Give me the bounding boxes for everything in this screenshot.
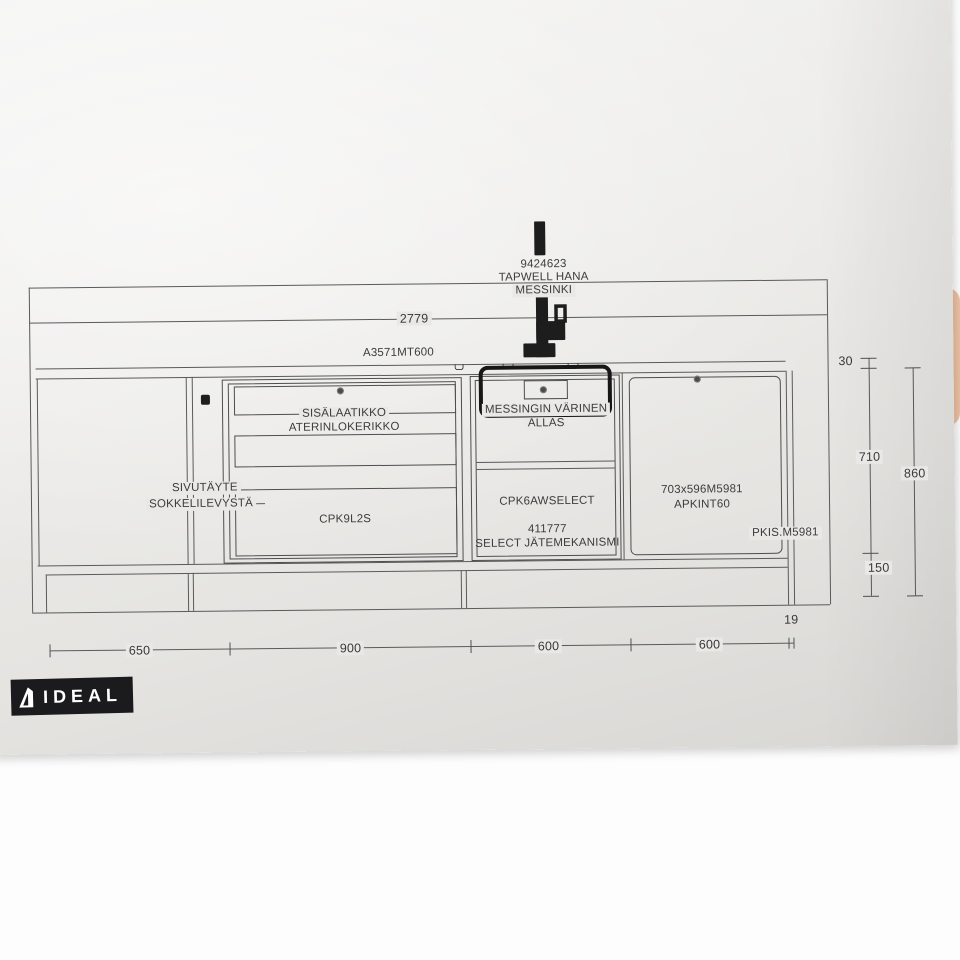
dim-tick [630, 638, 631, 651]
countertop-top-line [36, 361, 786, 370]
photo-of-kitchen-drawing: 2779 A3571MT600 9424623 TAPWELL HANA MES… [0, 0, 960, 960]
countertop-bottom-line [36, 371, 786, 380]
ideal-logo: IDEAL [11, 677, 134, 716]
floor-line [32, 604, 830, 613]
drawer-middle-box [234, 433, 456, 467]
inner-drawer-label-line2: ATERINLOKERIKKO [289, 421, 400, 435]
worktop-code-label: A3571MT600 [363, 346, 434, 360]
drawer-unit-outer-box [222, 377, 464, 564]
filler-label-line1: SIVUTÄYTE [169, 481, 241, 495]
screw-icon [337, 387, 344, 394]
width-dim-label-650: 650 [126, 643, 154, 658]
plinth-top-line [46, 567, 788, 576]
width-dim-label-600a: 600 [535, 639, 563, 654]
width-dim-label-900: 900 [337, 641, 365, 656]
bottom-dim-line [50, 643, 794, 652]
screw-icon [694, 376, 701, 383]
dim-tick [861, 368, 877, 369]
side-panel-right-line [792, 371, 795, 605]
side-panel-left-line [786, 371, 789, 605]
inner-drawer-label-line1: SISÄLAATIKKO [299, 407, 389, 421]
dim-tick [793, 638, 794, 649]
dim-tick [861, 358, 877, 359]
dim-tick [863, 596, 879, 597]
ideal-logo-icon [17, 685, 38, 710]
dim-tick [49, 644, 50, 657]
worktop-thickness-dim-label: 30 [838, 354, 852, 369]
faucet-material-label: MESSINKI [512, 284, 575, 298]
sink-color-label-line1: MESSINGIN VÄRINEN [482, 403, 610, 418]
faucet-code-label: 9424623 [520, 258, 566, 272]
total-height-dim-line [913, 367, 916, 595]
appliance-left-line [622, 372, 625, 559]
knob-icon [201, 395, 210, 405]
waste-mech-code-label: 411777 [528, 523, 567, 537]
sink-cabinet-rail-bottom [477, 467, 615, 469]
dim-tick [229, 643, 230, 656]
sink-color-label-line2: ALLAS [525, 417, 568, 431]
dim-tick [907, 595, 923, 596]
sink-cabinet-code-label: CPK6AWSELECT [499, 495, 594, 509]
width-dim-label-600b: 600 [696, 637, 724, 652]
total-width-dim-label: 2779 [397, 311, 432, 326]
filler-right-line [192, 377, 195, 564]
plinth-joint-line [188, 573, 189, 611]
plinth-joint-line [461, 570, 462, 608]
plinth-joint-line [466, 570, 467, 608]
cabinet-height-dim-label: 710 [856, 450, 884, 465]
cabinet-elevation-drawing: 2779 A3571MT600 9424623 TAPWELL HANA MES… [0, 0, 960, 945]
left-wall-line [29, 288, 33, 613]
appliance-size-label: 703x596M5981 [661, 483, 743, 497]
end-gap-dim-label: 19 [784, 613, 798, 628]
drawer-cabinet-code-label: CPK9L2S [319, 513, 371, 527]
filler-left-line [186, 377, 189, 564]
wall-top-line [29, 279, 827, 288]
filler-label-line2: SOKKELILEVYSTÄ [146, 497, 256, 511]
dim-tick [788, 638, 789, 649]
appliance-code-label: APKINT60 [674, 498, 730, 512]
paper-sheet: 2779 A3571MT600 9424623 TAPWELL HANA MES… [0, 0, 958, 755]
right-wall-line [827, 279, 831, 604]
left-cabinet-side-line [37, 379, 40, 566]
plinth-left-line [46, 574, 47, 612]
ideal-logo-text: IDEAL [43, 684, 123, 707]
plinth-joint-line [193, 573, 194, 611]
total-height-dim-label: 860 [901, 466, 929, 481]
screw-icon [540, 386, 547, 393]
dim-tick [905, 367, 921, 368]
sink-cabinet-rail-top [477, 460, 615, 462]
cabinet-bottom-line [38, 558, 788, 567]
plinth-height-dim-label: 150 [865, 561, 893, 576]
dim-tick [863, 553, 879, 554]
side-panel-code-label: PKIS.M5981 [749, 526, 822, 540]
clip-icon [455, 364, 464, 370]
faucet-name-label: TAPWELL HANA [499, 271, 589, 285]
waste-mech-name-label: SELECT JÄTEMEKANISMI [475, 536, 620, 551]
dim-tick [470, 640, 471, 653]
